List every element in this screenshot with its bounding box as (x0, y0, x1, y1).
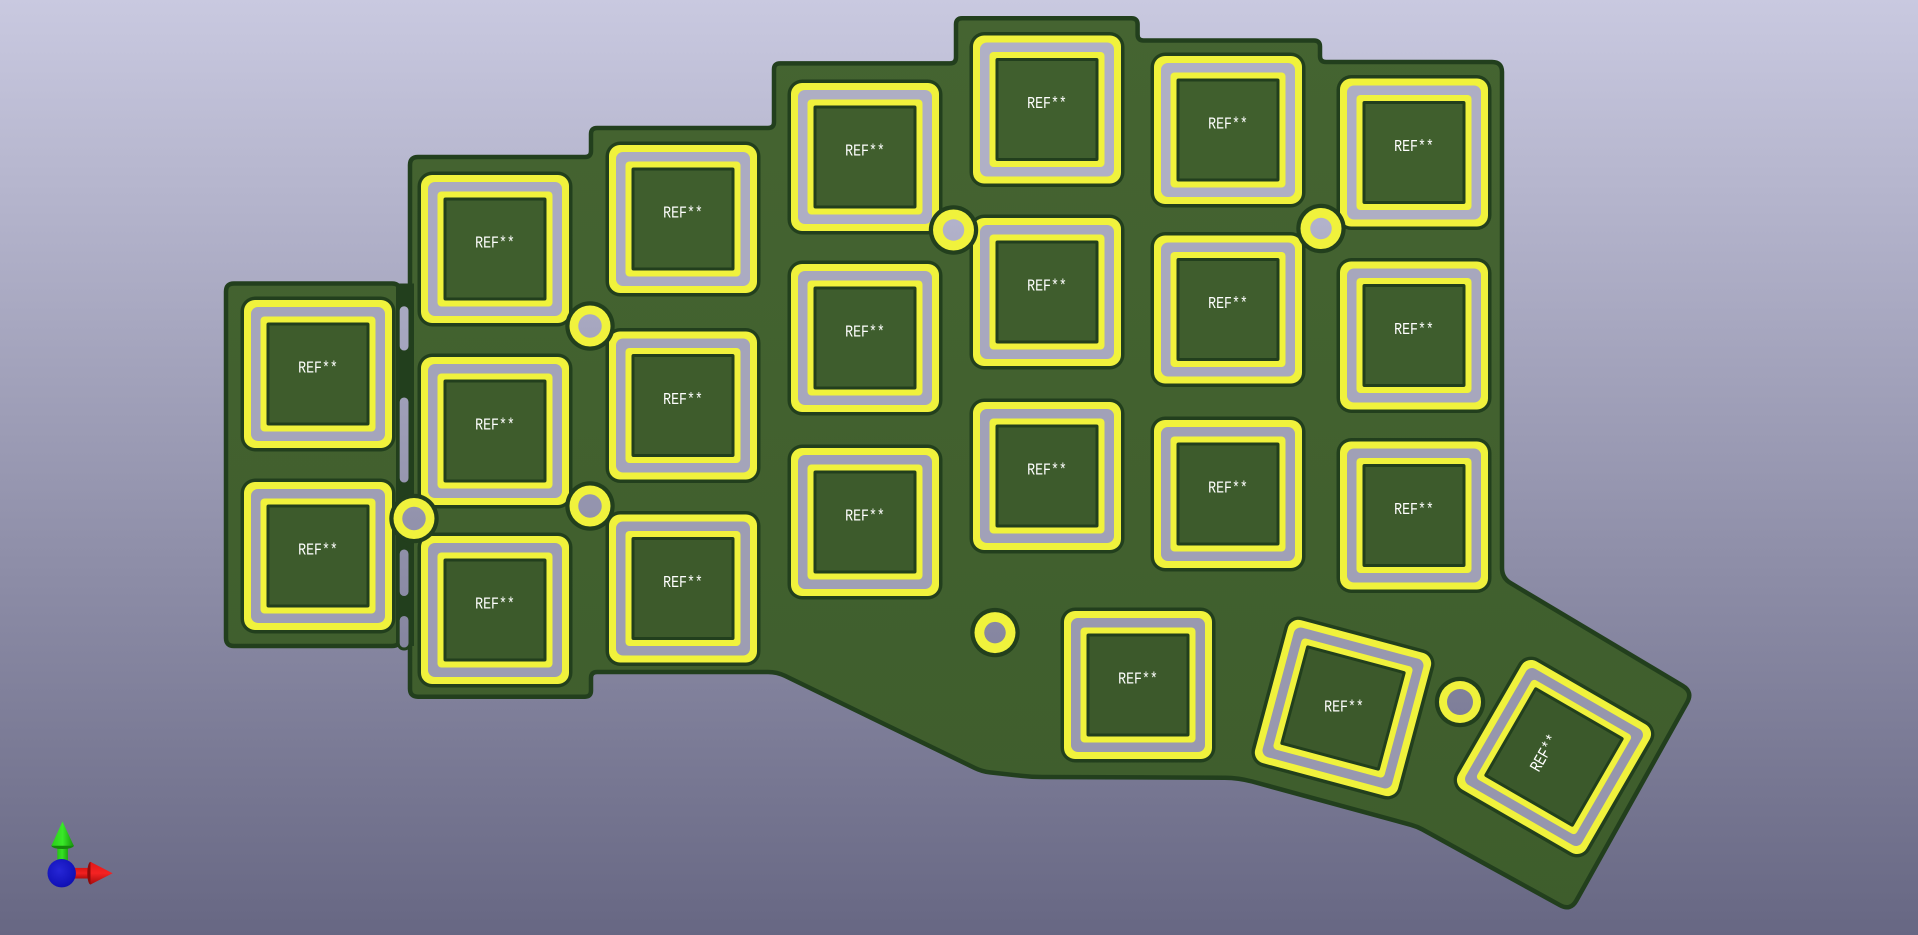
svg-text:REF**: REF** (475, 594, 515, 614)
svg-text:REF**: REF** (1394, 319, 1434, 339)
svg-text:REF**: REF** (1027, 460, 1067, 480)
svg-text:REF**: REF** (1394, 499, 1434, 519)
svg-text:REF**: REF** (1118, 669, 1158, 689)
svg-text:REF**: REF** (1027, 93, 1067, 113)
svg-text:REF**: REF** (1324, 697, 1364, 717)
svg-text:REF**: REF** (663, 203, 703, 223)
svg-text:REF**: REF** (663, 389, 703, 409)
svg-text:REF**: REF** (1208, 114, 1248, 134)
svg-text:REF**: REF** (298, 358, 338, 378)
svg-text:REF**: REF** (1027, 276, 1067, 296)
svg-text:REF**: REF** (298, 540, 338, 560)
svg-text:REF**: REF** (845, 141, 885, 161)
svg-text:REF**: REF** (845, 322, 885, 342)
svg-text:REF**: REF** (663, 572, 703, 592)
svg-text:REF**: REF** (1394, 136, 1434, 156)
svg-text:REF**: REF** (1208, 478, 1248, 498)
svg-text:REF**: REF** (845, 506, 885, 526)
svg-text:REF**: REF** (1208, 293, 1248, 313)
svg-text:REF**: REF** (475, 233, 515, 253)
svg-text:REF**: REF** (475, 415, 515, 435)
